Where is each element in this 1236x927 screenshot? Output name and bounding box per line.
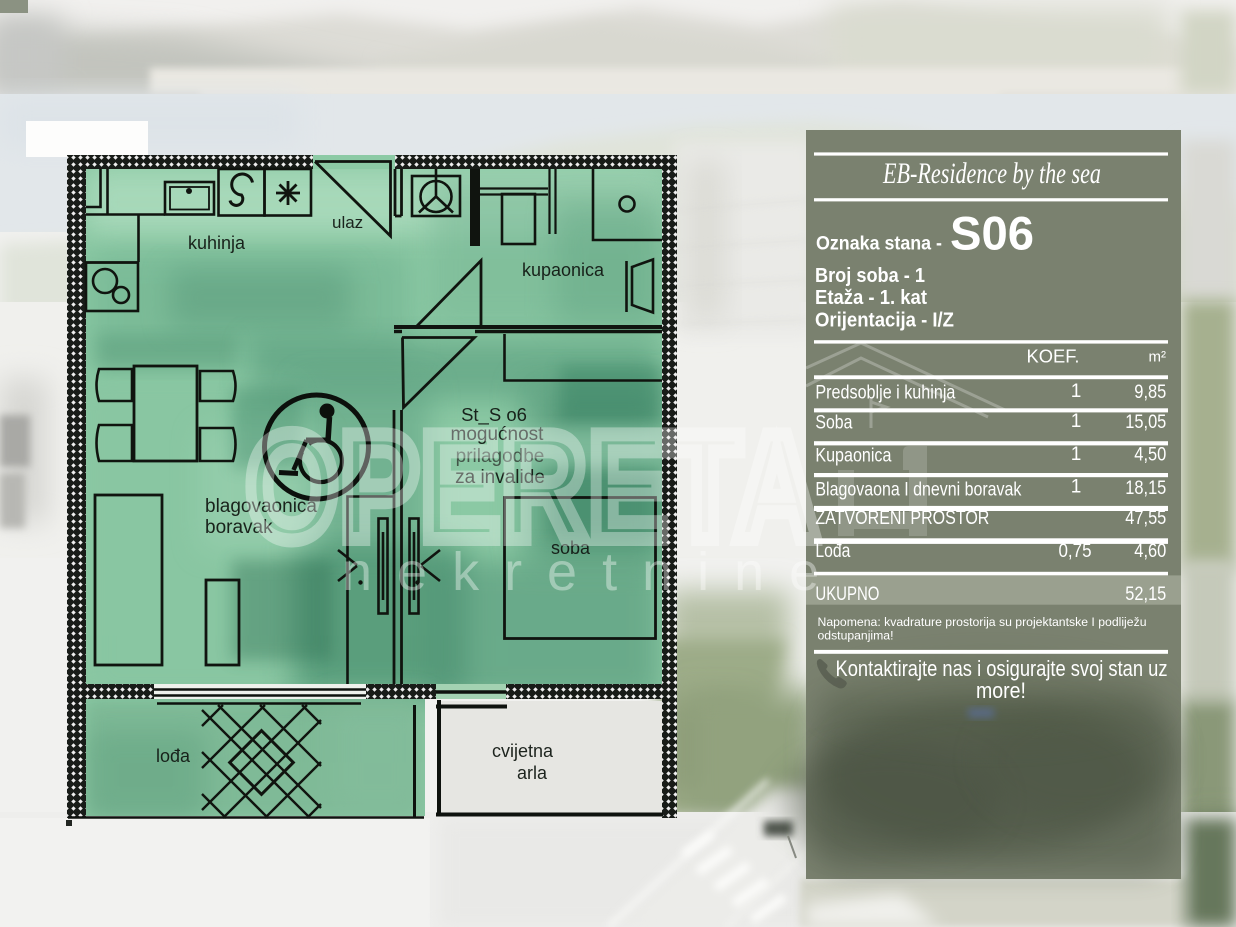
svg-text:Napomena: kvadrature prostorij: Napomena: kvadrature prostorija su proje… — [818, 615, 1147, 629]
svg-text:1: 1 — [1071, 381, 1082, 402]
svg-text:4,60: 4,60 — [1134, 541, 1166, 562]
svg-text:EB-Residence by the sea: EB-Residence by the sea — [882, 157, 1101, 190]
svg-text:1: 1 — [1071, 477, 1082, 498]
svg-text:lođa: lođa — [156, 746, 191, 766]
svg-text:18,15: 18,15 — [1125, 478, 1166, 499]
svg-text:1: 1 — [1071, 411, 1082, 432]
svg-text:52,15: 52,15 — [1125, 584, 1166, 605]
svg-text:Orijentacija - I/Z: Orijentacija - I/Z — [815, 309, 954, 331]
svg-text:0,75: 0,75 — [1059, 541, 1092, 562]
svg-text:47,55: 47,55 — [1125, 508, 1166, 529]
svg-text:15,05: 15,05 — [1125, 412, 1166, 433]
svg-text:more!: more! — [976, 678, 1026, 703]
svg-text:Blagovaona I dnevni boravak: Blagovaona I dnevni boravak — [815, 479, 1021, 500]
svg-text:m²: m² — [1149, 349, 1167, 366]
svg-text:Predsoblje i kuhinja: Predsoblje i kuhinja — [815, 382, 955, 403]
svg-text:cvijetna: cvijetna — [492, 741, 554, 761]
svg-text:4,50: 4,50 — [1134, 445, 1166, 466]
svg-text:Etaža - 1. kat: Etaža - 1. kat — [815, 287, 927, 309]
svg-text:ZATVORENI PROSTOR: ZATVORENI PROSTOR — [815, 508, 989, 529]
svg-text:Kupaonica: Kupaonica — [815, 445, 891, 466]
svg-text:S06: S06 — [950, 207, 1034, 260]
svg-text:1: 1 — [1071, 444, 1082, 465]
svg-text:Broj soba - 1: Broj soba - 1 — [815, 265, 925, 287]
svg-text:kupaonica: kupaonica — [522, 260, 605, 280]
svg-text:KOEF.: KOEF. — [1027, 345, 1080, 366]
svg-text:Oznaka stana -: Oznaka stana - — [816, 233, 942, 255]
svg-text:ulaz: ulaz — [332, 213, 363, 232]
svg-text:odstupanjima!: odstupanjima! — [818, 628, 894, 642]
svg-text:9,85: 9,85 — [1134, 382, 1166, 403]
svg-text:arla: arla — [517, 763, 548, 783]
svg-text:kuhinja: kuhinja — [188, 233, 246, 253]
